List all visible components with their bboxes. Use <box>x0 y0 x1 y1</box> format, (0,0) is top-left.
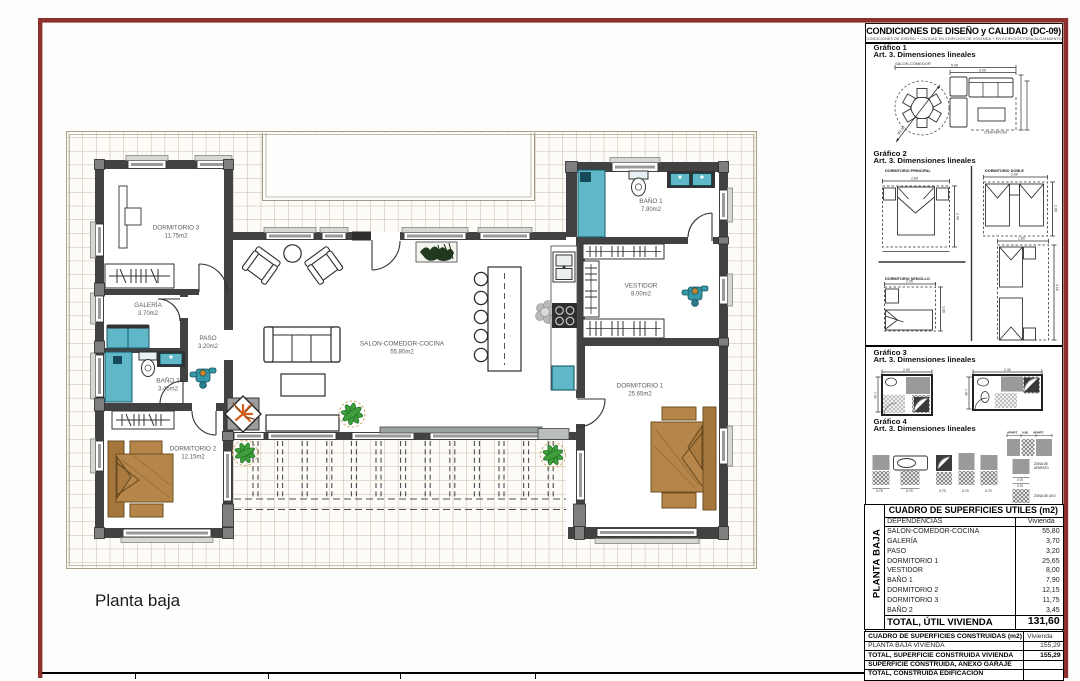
svg-text:2.40: 2.40 <box>955 213 959 220</box>
svg-text:1.90: 1.90 <box>873 392 877 399</box>
svg-text:DORMITORIO 1: DORMITORIO 1 <box>617 383 664 390</box>
svg-text:8.00m2: 8.00m2 <box>631 292 652 298</box>
svg-text:2.00: 2.00 <box>903 368 910 372</box>
svg-text:2.60: 2.60 <box>911 177 918 181</box>
svg-text:BAÑO 1: BAÑO 1 <box>639 196 663 205</box>
svg-text:2.05: 2.05 <box>906 280 913 284</box>
svg-text:25.65m2: 25.65m2 <box>628 392 652 398</box>
svg-text:DORMITORIO PRINCIPAL: DORMITORIO PRINCIPAL <box>885 169 932 173</box>
svg-text:3.45m2: 3.45m2 <box>158 387 179 393</box>
svg-text:0.70: 0.70 <box>985 489 992 493</box>
svg-text:0.80: 0.80 <box>1022 431 1028 435</box>
svg-text:GALERÍA: GALERÍA <box>134 300 162 309</box>
svg-text:1.80: 1.80 <box>1018 237 1025 241</box>
svg-text:2.00: 2.00 <box>1053 205 1057 212</box>
svg-text:0.75: 0.75 <box>876 489 883 493</box>
svg-text:2.45: 2.45 <box>1004 368 1011 372</box>
svg-text:APART.: APART. <box>1007 431 1018 435</box>
svg-text:3.00: 3.00 <box>979 69 986 73</box>
svg-text:55.80m2: 55.80m2 <box>390 350 414 356</box>
svg-text:7.90m2: 7.90m2 <box>641 207 662 213</box>
svg-text:SALON-COMEDOR-COCINA: SALON-COMEDOR-COCINA <box>360 341 445 348</box>
svg-text:0.70: 0.70 <box>1017 484 1023 488</box>
svg-text:4.10: 4.10 <box>1055 284 1059 291</box>
svg-text:3.70m2: 3.70m2 <box>138 311 159 317</box>
svg-text:BAÑO 2: BAÑO 2 <box>156 376 180 385</box>
svg-text:1.40: 1.40 <box>964 389 968 396</box>
svg-text:0.70: 0.70 <box>1017 478 1023 482</box>
svg-text:0.70: 0.70 <box>906 489 913 493</box>
svg-text:11.75m2: 11.75m2 <box>165 234 189 240</box>
svg-text:VESTIDOR: VESTIDOR <box>625 283 658 290</box>
svg-text:0.70: 0.70 <box>962 489 969 493</box>
svg-text:DORMITORIO 2: DORMITORIO 2 <box>170 446 217 453</box>
svg-text:ZONA REPOSO: ZONA REPOSO <box>984 131 1008 135</box>
svg-text:DORMITORIO 3: DORMITORIO 3 <box>153 225 200 232</box>
svg-text:1.80: 1.80 <box>941 306 945 313</box>
svg-text:APART.: APART. <box>1033 431 1044 435</box>
svg-text:3.20m2: 3.20m2 <box>198 344 219 350</box>
svg-text:PASO: PASO <box>199 335 216 342</box>
svg-text:0.70: 0.70 <box>939 489 946 493</box>
svg-text:5.00: 5.00 <box>951 64 958 68</box>
svg-text:DORMITORIO DOBLE: DORMITORIO DOBLE <box>985 169 1024 173</box>
svg-text:APARATO: APARATO <box>1034 466 1049 470</box>
svg-text:ZONA DE USO: ZONA DE USO <box>1034 494 1056 498</box>
svg-text:12.15m2: 12.15m2 <box>181 455 205 461</box>
svg-text:2.60: 2.60 <box>1011 173 1018 177</box>
svg-text:SALON-COMEDOR: SALON-COMEDOR <box>895 61 931 66</box>
